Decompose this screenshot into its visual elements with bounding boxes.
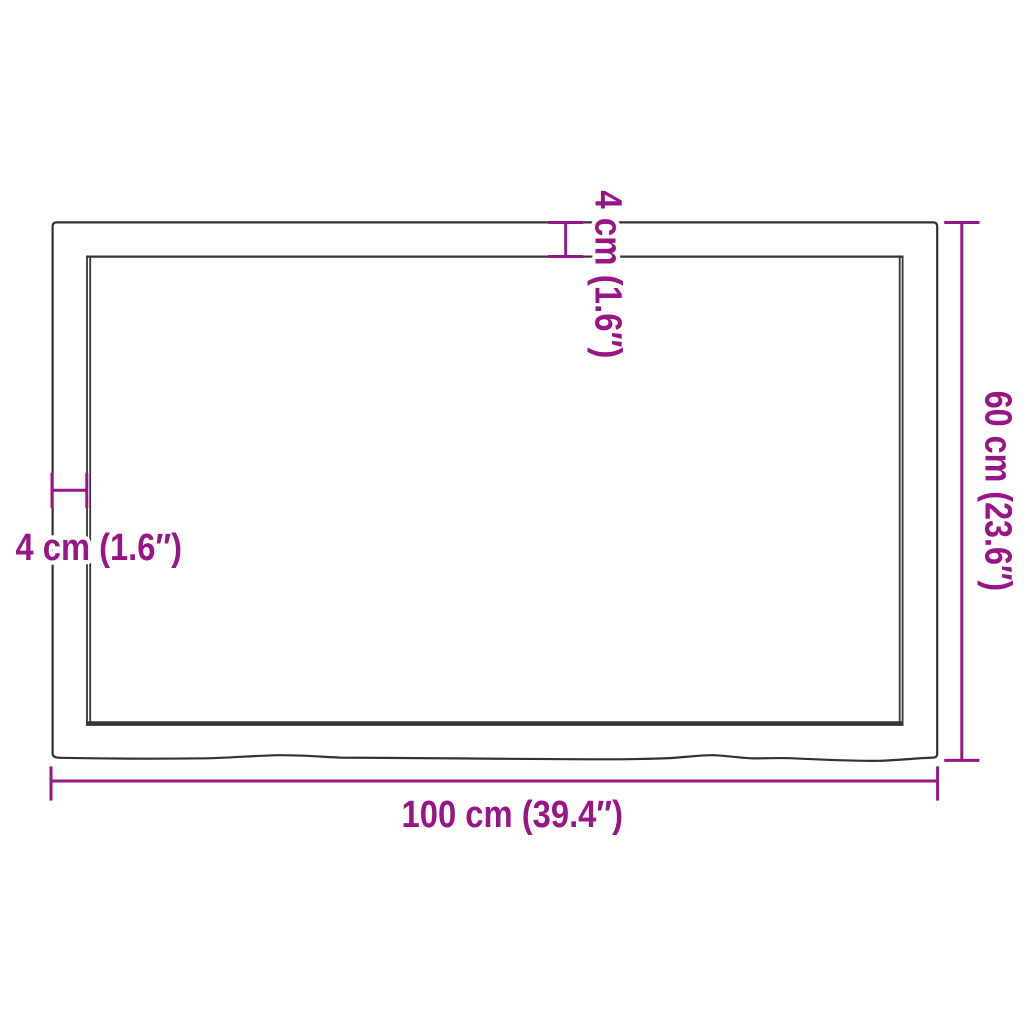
svg-text:100 cm (39.4″): 100 cm (39.4″)	[402, 794, 624, 836]
svg-text:4 cm (1.6″): 4 cm (1.6″)	[16, 527, 183, 569]
svg-text:60 cm (23.6″): 60 cm (23.6″)	[977, 391, 1019, 592]
svg-text:4 cm (1.6″): 4 cm (1.6″)	[587, 190, 629, 358]
